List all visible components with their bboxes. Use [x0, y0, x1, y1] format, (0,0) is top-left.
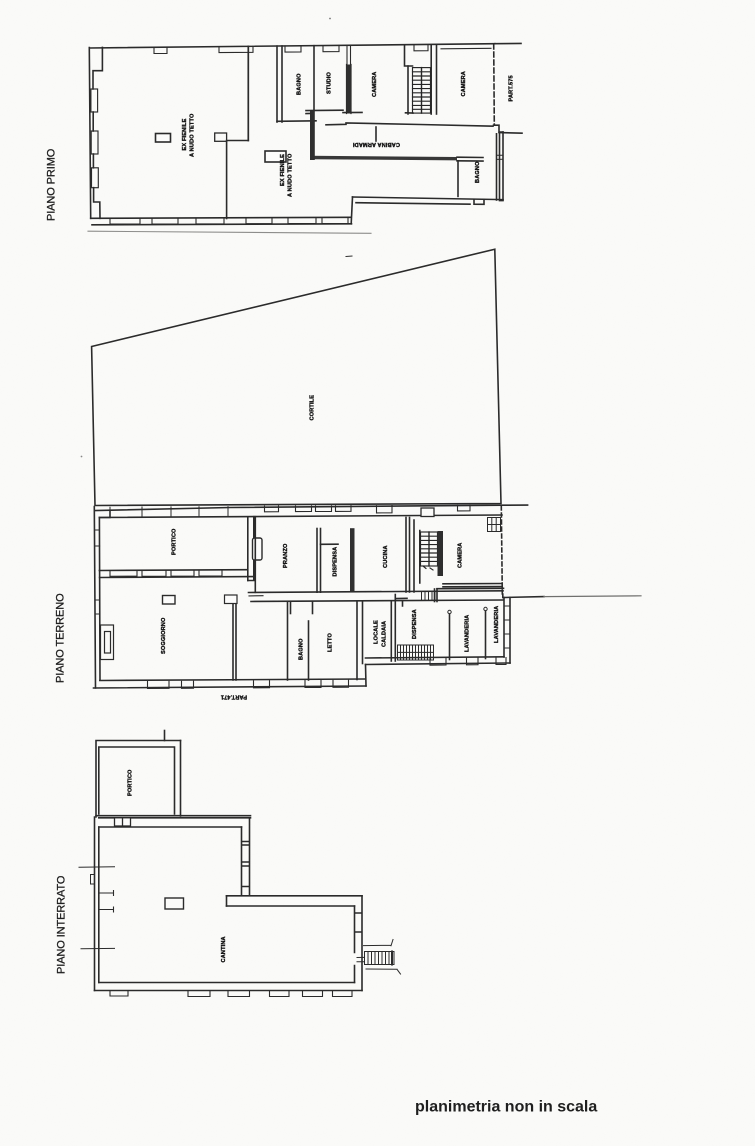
svg-text:DISPENSA: DISPENSA [412, 609, 418, 639]
svg-text:CALDAIA: CALDAIA [382, 621, 388, 647]
svg-text:PRANZO: PRANZO [283, 543, 289, 568]
svg-text:CAMERA: CAMERA [372, 72, 378, 97]
svg-text:A NUDO TETTO: A NUDO TETTO [288, 153, 294, 197]
svg-text:PORTICO: PORTICO [128, 769, 134, 796]
svg-text:PART.575: PART.575 [509, 75, 515, 101]
svg-text:CUCINA: CUCINA [383, 545, 389, 568]
svg-text:BAGNO: BAGNO [475, 161, 481, 183]
svg-text:LAVANDERIA: LAVANDERIA [465, 615, 471, 652]
svg-text:PIANO PRIMO: PIANO PRIMO [46, 148, 58, 221]
svg-text:LETTO: LETTO [328, 633, 334, 652]
svg-text:DISPENSA: DISPENSA [333, 547, 339, 577]
svg-text:STUDIO: STUDIO [327, 71, 333, 94]
svg-text:planimetria non in scala: planimetria non in scala [415, 1099, 597, 1116]
svg-text:CAMERA: CAMERA [461, 71, 467, 96]
svg-text:CANTINA: CANTINA [221, 936, 227, 962]
svg-text:PIANO TERRENO: PIANO TERRENO [55, 593, 67, 683]
svg-text:PART.471: PART.471 [221, 694, 247, 700]
svg-text:CORTILE: CORTILE [310, 395, 316, 421]
svg-text:BAGNO: BAGNO [299, 638, 305, 660]
svg-text:EX FIENILE: EX FIENILE [182, 118, 188, 150]
svg-text:A NUDO TETTO: A NUDO TETTO [190, 113, 196, 157]
svg-text:LOCALE: LOCALE [374, 620, 380, 644]
svg-text:LAVANDERIA: LAVANDERIA [494, 606, 500, 643]
svg-text:CABINA ARMADI: CABINA ARMADI [352, 141, 400, 147]
svg-text:EX FIENILE: EX FIENILE [280, 154, 286, 186]
svg-text:BAGNO: BAGNO [297, 73, 303, 95]
svg-text:CAMERA: CAMERA [458, 543, 464, 568]
svg-text:SOGGIORNO: SOGGIORNO [161, 617, 167, 654]
svg-text:PIANO INTERRATO: PIANO INTERRATO [56, 875, 68, 974]
svg-text:PORTICO: PORTICO [172, 528, 178, 555]
